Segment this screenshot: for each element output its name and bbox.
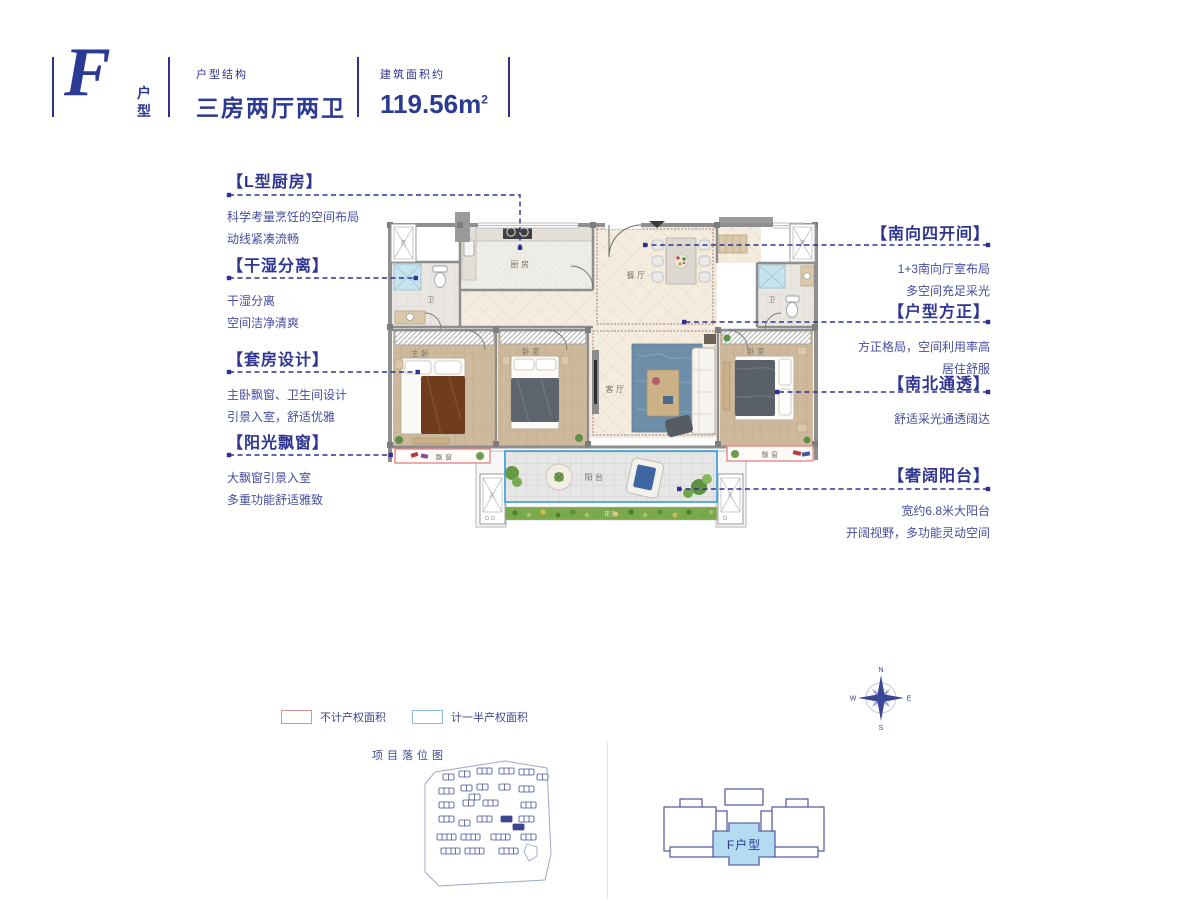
flower-bed-label: 花池 — [604, 510, 618, 518]
plant-icon — [683, 488, 693, 498]
ac-unit: AC — [391, 224, 416, 262]
balcony-table-icon — [546, 464, 572, 490]
bedroom2-label: 卧室 — [522, 346, 542, 356]
area-value: 119.56m2 — [380, 89, 488, 120]
no-property-area-swatch — [281, 710, 312, 724]
half-property-area-label: 计一半产权面积 — [451, 709, 528, 725]
key-plan-label: F户型 — [727, 837, 761, 852]
bay-right-label: 飘窗 — [762, 450, 781, 459]
plant-icon — [575, 434, 583, 442]
bath-left-label: 卫 — [427, 296, 437, 304]
compass-icon: N E S W — [850, 667, 912, 732]
ac-unit: AC — [480, 474, 505, 524]
svg-text:AC: AC — [799, 240, 805, 247]
lounge-chair-icon — [626, 457, 665, 499]
flower-centerpiece-icon — [674, 254, 688, 268]
plant-icon — [476, 452, 484, 460]
plant-icon — [702, 474, 712, 484]
header-divider — [357, 57, 359, 117]
bench-icon — [413, 438, 449, 444]
half-property-area-swatch — [412, 710, 443, 724]
page: F 户 型 户型结构 三房两厅两卫 建筑面积约 119.56m2 【L型厨房】 … — [0, 0, 1200, 900]
header-divider — [508, 57, 510, 117]
compass-s: S — [879, 725, 884, 732]
header-divider — [168, 57, 170, 117]
ac-unit: AC — [718, 474, 743, 524]
compass-n: N — [878, 667, 883, 674]
bedroom3-label: 卧室 — [747, 346, 767, 356]
no-property-area-label: 不计产权面积 — [320, 709, 386, 725]
structure-value: 三房两厅两卫 — [196, 89, 346, 123]
floor-plan: AC AC AC AC — [383, 210, 823, 540]
wardrobe-icon — [500, 331, 586, 344]
svg-text:AC: AC — [400, 240, 406, 247]
living-label: 客厅 — [606, 384, 627, 394]
ac-unit: AC — [790, 224, 815, 262]
area-block: 建筑面积约 119.56m2 — [380, 66, 488, 120]
bed-icon — [511, 356, 559, 429]
side-table-icon — [704, 334, 716, 344]
structure-label: 户型结构 — [196, 66, 346, 82]
site-map — [415, 758, 565, 898]
header-tick — [52, 57, 54, 117]
bed-icon — [401, 358, 465, 434]
wardrobe-icon — [722, 331, 811, 344]
svg-text:AC: AC — [728, 492, 733, 499]
unit-logo-suffix-top: 户 — [137, 84, 151, 102]
compass-w: W — [850, 696, 857, 703]
tv-icon — [594, 360, 597, 404]
plant-icon — [395, 436, 403, 444]
unit-logo-letter: F — [64, 38, 111, 108]
plant-icon — [723, 334, 730, 341]
plant-icon — [731, 450, 739, 458]
area-label: 建筑面积约 — [380, 66, 488, 82]
bottom-divider — [607, 741, 608, 899]
bay-left-label: 飘窗 — [436, 453, 455, 462]
balcony-label: 阳台 — [585, 472, 606, 482]
toilet-icon — [433, 266, 447, 288]
master-label: 主卧 — [411, 348, 431, 358]
bath-right-label: 卫 — [768, 296, 778, 304]
sofa-icon — [692, 348, 715, 434]
wardrobe-icon — [395, 331, 494, 345]
plant-icon — [512, 477, 522, 487]
compass-e: E — [907, 696, 912, 703]
plant-icon — [804, 437, 811, 444]
svg-text:AC: AC — [490, 492, 495, 499]
site-badge-icon — [524, 844, 537, 861]
key-plan: F户型 — [652, 783, 837, 883]
dresser-icon — [723, 362, 730, 410]
kitchen-label: 厨房 — [511, 259, 532, 269]
unit-logo-suffix-bottom: 型 — [137, 102, 151, 120]
dining-label: 餐厅 — [627, 271, 648, 280]
unit-logo-suffix: 户 型 — [137, 84, 151, 120]
sink-icon — [464, 240, 474, 256]
legend: 不计产权面积 计一半产权面积 — [281, 709, 528, 725]
coffee-table-icon — [647, 370, 679, 416]
balcony — [505, 451, 717, 502]
feature-title: 【L型厨房】 — [227, 168, 457, 192]
structure-block: 户型结构 三房两厅两卫 — [196, 66, 346, 123]
bed-icon — [735, 356, 794, 420]
site-buildings — [437, 768, 548, 854]
